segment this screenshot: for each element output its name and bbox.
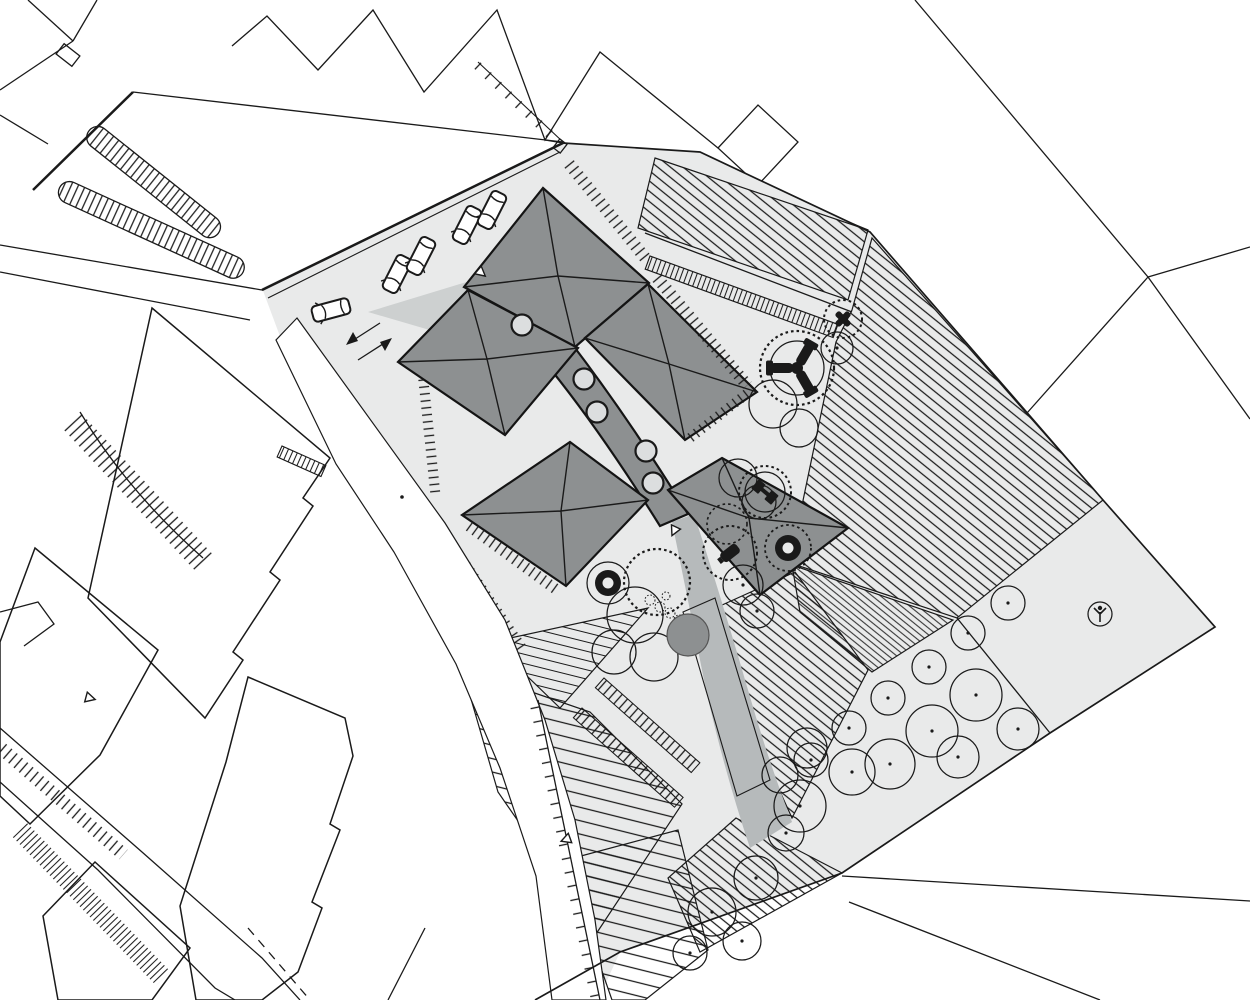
skylight	[587, 402, 608, 423]
context-building-row	[232, 10, 718, 148]
small-context-building	[56, 44, 80, 67]
skylight	[512, 315, 533, 336]
context-building-southwest	[0, 548, 158, 824]
context-roof-stripes	[277, 446, 326, 476]
entrance-marker-icon	[85, 692, 97, 704]
context-buildings	[0, 308, 353, 1000]
skylight	[636, 441, 657, 462]
skylight	[643, 473, 664, 494]
slope-hatch	[12, 822, 171, 986]
site-plan-drawing	[0, 0, 1250, 1000]
survey-point	[400, 495, 404, 499]
solid-tree-canopy	[667, 614, 709, 656]
site-plan-page	[0, 0, 1250, 1000]
context-building-south	[180, 677, 353, 1000]
skylight	[574, 369, 595, 390]
